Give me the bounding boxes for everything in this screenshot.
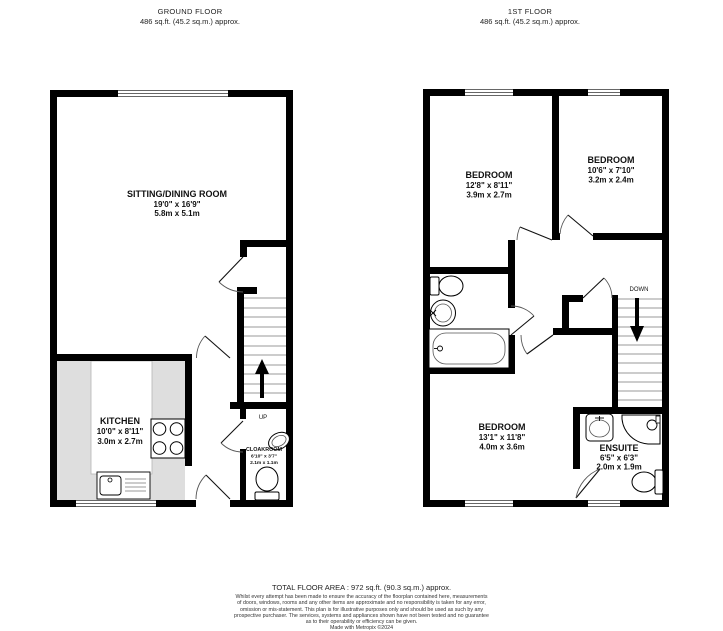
ground-floor-area: 486 sq.ft. (45.2 sq.m.) approx. (40, 17, 340, 27)
room-dims-metric: 3.9m x 2.7m (466, 191, 511, 200)
toilet-icon (255, 467, 279, 500)
total-floor-area: TOTAL FLOOR AREA : 972 sq.ft. (90.3 sq.m… (0, 583, 723, 592)
room-dims-imperial: 12'8" x 8'11" (466, 181, 513, 190)
room-dims-imperial: 10'0" x 8'11" (97, 427, 144, 436)
door-arc (517, 227, 552, 240)
room-label-bedroom-top-left: BEDROOM 12'8" x 8'11" 3.9m x 2.7m (466, 170, 513, 200)
door-arc (576, 469, 600, 498)
room-dims-imperial: 6'5" x 6'3" (600, 454, 638, 463)
room-dims-imperial: 19'0" x 16'9" (154, 200, 201, 209)
room-name: CLOAKROOM (246, 447, 282, 453)
door-arc (521, 335, 553, 354)
sink-icon (586, 414, 613, 441)
room-label-bedroom-bottom: BEDROOM 13'1" x 11'8" 4.0m x 3.6m (479, 422, 526, 452)
ground-floor-plan: SITTING/DINING ROOM 19'0" x 16'9" 5.8m x… (40, 80, 302, 516)
room-dims-metric: 4.0m x 3.6m (479, 443, 524, 452)
room-name: ENSUITE (599, 443, 638, 453)
toilet-icon (430, 276, 463, 296)
door-arc (560, 215, 593, 236)
room-label-ensuite: ENSUITE 6'5" x 6'3" 2.0m x 1.9m (596, 443, 641, 472)
door-arc (197, 336, 231, 358)
toilet-icon (632, 470, 663, 494)
room-label-sitting-dining: SITTING/DINING ROOM 19'0" x 16'9" 5.8m x… (127, 189, 227, 218)
room-name: SITTING/DINING ROOM (127, 189, 227, 199)
hob-icon (151, 419, 185, 458)
room-dims-imperial: 6'10" x 3'7" (251, 454, 277, 460)
window (118, 90, 228, 97)
disclaimer: Whilst every attempt has been made to en… (0, 594, 723, 631)
sink-icon (430, 300, 456, 326)
door-arc (583, 278, 612, 298)
room-label-bedroom-top-right: BEDROOM 10'6" x 7'10" 3.2m x 2.4m (588, 155, 635, 185)
kitchen-sink-icon (97, 472, 150, 499)
stairs-down (618, 298, 662, 400)
room-label-cloakroom: CLOAKROOM 6'10" x 3'7" 2.1m x 1.1m (246, 447, 282, 466)
room-name: BEDROOM (479, 422, 526, 432)
stairs-down-label: DOWN (630, 287, 649, 293)
room-dims-metric: 3.0m x 2.7m (97, 437, 142, 446)
ground-floor-header: GROUND FLOOR 486 sq.ft. (45.2 sq.m.) app… (40, 7, 340, 27)
first-floor-area: 486 sq.ft. (45.2 sq.m.) approx. (380, 17, 680, 27)
bath-icon (429, 329, 509, 368)
first-floor-title: 1ST FLOOR (380, 7, 680, 17)
stairs-up (244, 298, 286, 398)
door-arc (511, 306, 534, 335)
room-name: KITCHEN (100, 416, 140, 426)
room-dims-metric: 5.8m x 5.1m (154, 209, 199, 218)
shower-icon (622, 415, 660, 444)
door-arc (219, 257, 243, 292)
room-name: BEDROOM (588, 155, 635, 165)
room-dims-metric: 3.2m x 2.4m (588, 176, 633, 185)
room-dims-metric: 2.0m x 1.9m (596, 463, 641, 472)
door-arc (196, 475, 230, 499)
stairs-up-label: UP (259, 415, 267, 421)
ground-floor-title: GROUND FLOOR (40, 7, 340, 17)
room-dims-imperial: 10'6" x 7'10" (588, 166, 635, 175)
room-dims-imperial: 13'1" x 11'8" (479, 433, 526, 442)
down-arrow-icon (630, 298, 644, 342)
room-dims-metric: 2.1m x 1.1m (250, 460, 278, 466)
first-floor-header: 1ST FLOOR 486 sq.ft. (45.2 sq.m.) approx… (380, 7, 680, 27)
door-arc (221, 421, 243, 452)
room-label-kitchen: KITCHEN 10'0" x 8'11" 3.0m x 2.7m (97, 416, 144, 446)
floorplan-page: GROUND FLOOR 486 sq.ft. (45.2 sq.m.) app… (0, 0, 723, 631)
metropix-credit: Made with Metropix ©2024 (0, 625, 723, 631)
first-floor-plan: BEDROOM 12'8" x 8'11" 3.9m x 2.7m BEDROO… (413, 80, 679, 516)
room-name: BEDROOM (466, 170, 513, 180)
window (76, 500, 156, 507)
